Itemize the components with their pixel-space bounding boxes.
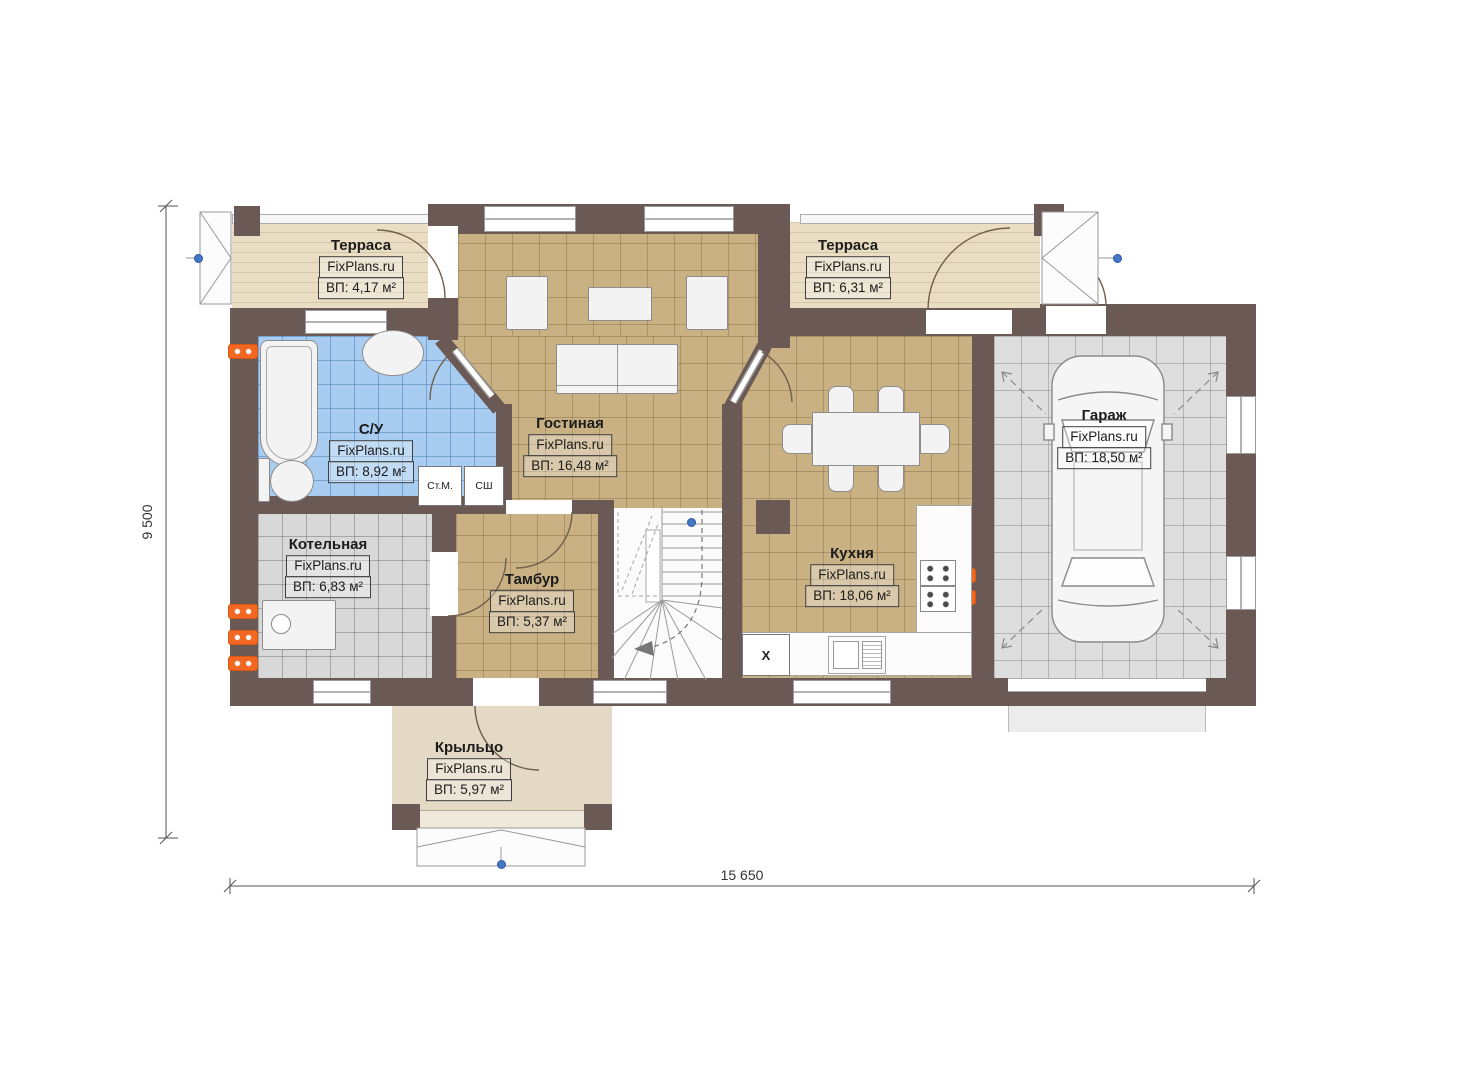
stove-burners-icon [920,586,956,612]
watermark: FixPlans.ru [490,590,574,612]
washing-machine-box: Ст.М. [418,466,462,506]
dryer-label: СШ [475,480,492,492]
floor-plan-page: { "dims": { "height_label": "9 500", "wi… [0,0,1474,1080]
armchair-icon [506,276,548,330]
width-dimension-label: 15 650 [721,867,764,883]
dryer-box: СШ [464,466,504,506]
room-name: С/У [359,421,383,438]
watermark: FixPlans.ru [806,256,890,278]
room-name: Крыльцо [435,739,503,756]
bathtub-icon [260,340,318,466]
staircase-floor [612,506,722,680]
door-opening [1046,306,1106,334]
room-label-terrace-right: Терраса FixPlans.ru ВП: 6,31 м² [805,237,891,299]
dining-table-icon [812,412,920,466]
chair-icon [878,386,904,414]
room-name: Котельная [289,536,368,553]
sofa-icon [556,344,678,394]
room-area: ВП: 18,50 м² [1057,447,1151,469]
window [1226,396,1256,454]
porch-pillar [392,804,420,830]
radiator-icon [228,630,258,645]
room-label-porch: Крыльцо FixPlans.ru ВП: 5,97 м² [426,739,512,801]
sink-drainer [862,641,882,669]
chair-icon [828,386,854,414]
window [305,310,387,334]
watermark: FixPlans.ru [810,564,894,586]
watermark: FixPlans.ru [286,555,370,577]
room-label-living-room: Гостиная FixPlans.ru ВП: 16,48 м² [523,415,617,477]
room-name: Гостиная [536,415,604,432]
door-opening [926,310,1012,334]
wall [722,404,742,680]
radiator-icon [228,604,258,619]
front-door-opening [473,678,539,706]
room-name: Кухня [830,545,874,562]
room-name: Тамбур [505,571,559,588]
dimension-line-horizontal [224,878,1260,894]
wall [1226,304,1256,706]
marker-dot-icon [1113,254,1122,263]
room-area: ВП: 6,83 м² [285,576,371,598]
bathtub-inner [266,346,312,460]
room-name: Терраса [818,237,878,254]
sink-icon [362,330,424,376]
room-label-boiler-room: Котельная FixPlans.ru ВП: 6,83 м² [285,536,371,598]
terrace-pillar [234,206,260,236]
room-area: ВП: 18,06 м² [805,585,899,607]
chair-icon [782,424,812,454]
room-label-vestibule: Тамбур FixPlans.ru ВП: 5,37 м² [489,571,575,633]
radiator-icon [228,656,258,671]
room-label-bathroom: С/У FixPlans.ru ВП: 8,92 м² [328,421,414,483]
door-opening [428,226,458,298]
porch-pillar [584,804,612,830]
marker-dot-icon [497,860,506,869]
chair-icon [828,464,854,492]
room-area: ВП: 5,37 м² [489,611,575,633]
chair-icon [920,424,950,454]
window [644,206,734,232]
fridge-box: X [742,634,790,676]
garage-floor [994,336,1226,680]
coffee-table-icon [588,287,652,321]
toilet-bowl-icon [270,460,314,502]
terrace-pillar [1034,204,1064,236]
fridge-mark: X [762,648,771,663]
boiler-unit-icon [262,600,336,650]
roof-mark-left [186,212,231,304]
height-dimension-label: 9 500 [139,504,155,539]
room-label-garage: Гараж FixPlans.ru ВП: 18,50 м² [1057,407,1151,469]
dimension-line-vertical [158,200,178,844]
window [1226,556,1256,610]
wall [598,500,614,706]
boiler-dial [271,614,291,634]
garage-door-opening [1008,678,1206,692]
chair-icon [878,464,904,492]
wall [972,308,994,680]
room-area: ВП: 4,17 м² [318,277,404,299]
toilet-tank-icon [258,458,270,502]
room-label-terrace-left: Терраса FixPlans.ru ВП: 4,17 м² [318,237,404,299]
watermark: FixPlans.ru [1062,426,1146,448]
radiator-icon [228,344,258,359]
door-opening [506,500,572,514]
vent-shaft [756,500,790,534]
room-label-kitchen: Кухня FixPlans.ru ВП: 18,06 м² [805,545,899,607]
sink-bowl [833,641,859,669]
terrace-railing [800,214,1040,224]
room-area: ВП: 6,31 м² [805,277,891,299]
porch-step [392,810,612,830]
room-name: Гараж [1082,407,1127,424]
sofa-back [557,385,677,393]
watermark: FixPlans.ru [427,758,511,780]
room-area: ВП: 8,92 м² [328,461,414,483]
kitchen-sink-icon [828,636,886,674]
room-name: Терраса [331,237,391,254]
window [313,680,371,704]
stove-burners-icon [920,560,956,586]
window [793,680,891,704]
marker-dot-icon [687,518,696,527]
door-opening [430,552,458,616]
watermark: FixPlans.ru [528,434,612,456]
watermark: FixPlans.ru [319,256,403,278]
washing-machine-label: Ст.М. [427,480,453,492]
wall [428,204,790,234]
window [593,680,667,704]
room-area: ВП: 5,97 м² [426,779,512,801]
room-area: ВП: 16,48 м² [523,455,617,477]
terrace-railing [232,214,450,224]
window [484,206,576,232]
armchair-icon [686,276,728,330]
watermark: FixPlans.ru [329,440,413,462]
marker-dot-icon [194,254,203,263]
